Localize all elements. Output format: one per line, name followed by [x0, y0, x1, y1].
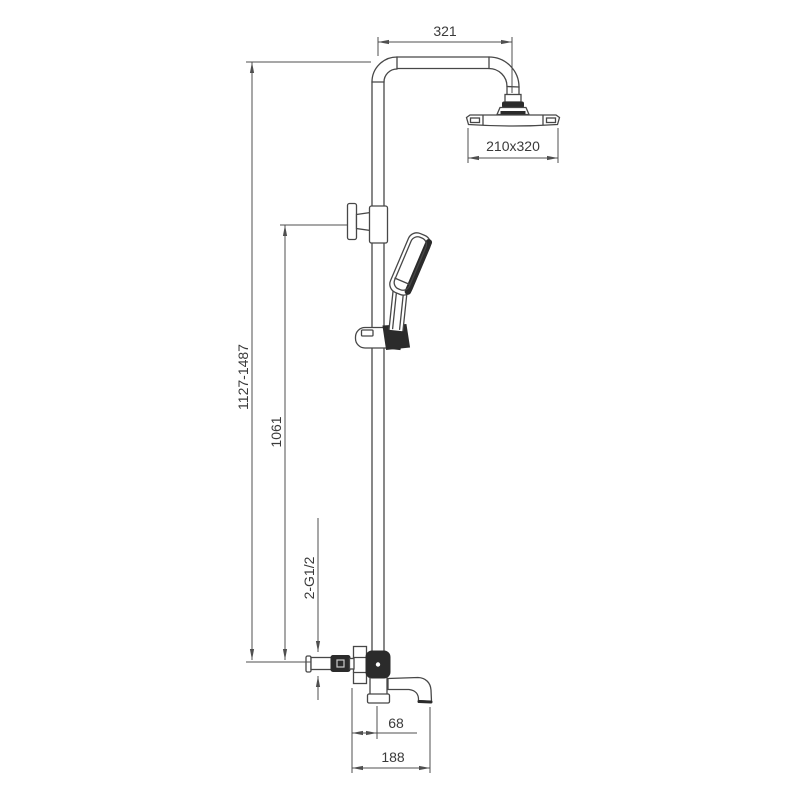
handle-rod — [311, 658, 332, 670]
spout-curve — [388, 678, 432, 702]
dim-label-188: 188 — [381, 749, 405, 765]
shower-arm — [372, 57, 519, 95]
mixer-valve — [354, 647, 391, 704]
hand-shower — [386, 230, 434, 350]
valve-handle — [306, 656, 354, 673]
valve-center-dot — [376, 662, 380, 666]
diverter-stem — [357, 213, 371, 231]
dim-label-210x320: 210x320 — [486, 138, 540, 154]
dim-label-1127-1487: 1127-1487 — [235, 344, 251, 410]
dim-inlet-thread: 2-G1/2 — [301, 518, 318, 700]
valve-flange — [354, 647, 367, 684]
diverter-sleeve — [370, 206, 388, 243]
technical-drawing-page: 321 210x320 1127-1487 1061 2-G1/2 — [0, 0, 800, 800]
dim-label-68: 68 — [388, 715, 404, 731]
handle-grip-block — [331, 656, 350, 672]
handle-end-cap — [306, 656, 311, 672]
dim-arm-projection: 321 — [378, 23, 512, 93]
valve-lower-cap — [368, 694, 390, 703]
dim-head-size: 210x320 — [468, 128, 558, 163]
dim-label-321: 321 — [433, 23, 457, 39]
diverter-handle-bar — [348, 204, 357, 240]
dimensions: 321 210x320 1127-1487 1061 2-G1/2 — [235, 23, 558, 773]
shower-system-diagram: 321 210x320 1127-1487 1061 2-G1/2 — [0, 0, 800, 800]
spout-outlet — [419, 702, 431, 703]
head-connector-nut — [505, 95, 521, 103]
tub-spout — [388, 678, 432, 703]
head-slab — [467, 115, 560, 126]
diverter-knob — [348, 204, 388, 244]
dim-label-1061: 1061 — [268, 416, 284, 447]
head-ball-joint — [503, 102, 524, 108]
dim-label-2-g12: 2-G1/2 — [301, 556, 317, 599]
riser-pipe — [372, 82, 384, 652]
handle-stem — [350, 659, 355, 670]
rain-shower-head — [467, 95, 560, 127]
